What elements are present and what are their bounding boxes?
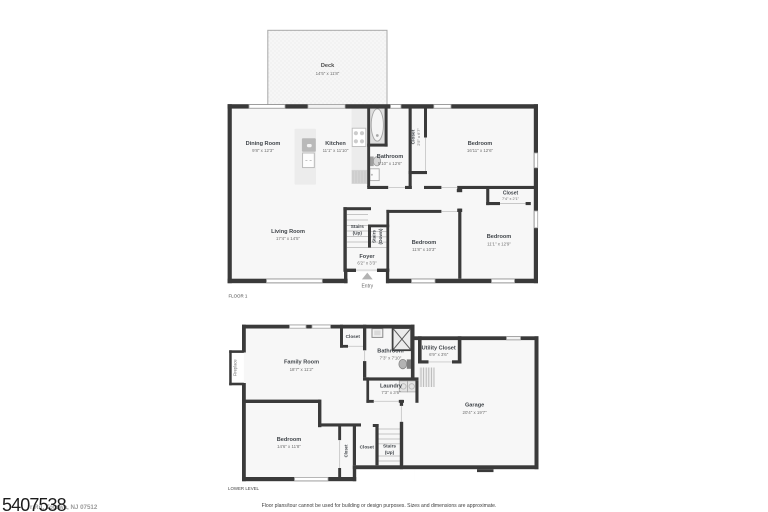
svg-text:6'2" x 3'3": 6'2" x 3'3"	[357, 261, 377, 266]
svg-text:Bathroom: Bathroom	[377, 154, 403, 160]
svg-text:Utility Closet: Utility Closet	[422, 345, 456, 351]
svg-text:18'7" x 11'2": 18'7" x 11'2"	[290, 367, 314, 372]
svg-text:(Up): (Up)	[385, 450, 395, 455]
svg-text:7'3" x 3'6": 7'3" x 3'6"	[381, 390, 401, 395]
svg-text:7'4" x 2'1": 7'4" x 2'1"	[502, 196, 520, 201]
svg-text:Bedroom: Bedroom	[468, 141, 493, 147]
svg-text:Dining Room: Dining Room	[246, 141, 281, 147]
svg-text:16'11" x 12'6": 16'11" x 12'6"	[467, 148, 494, 153]
svg-text:Entry: Entry	[361, 284, 373, 290]
svg-text:Stairs: Stairs	[383, 444, 396, 449]
svg-text:Family Room: Family Room	[284, 359, 319, 365]
svg-text:9'8" x 12'3": 9'8" x 12'3"	[252, 148, 274, 153]
svg-text:LOWER LEVEL: LOWER LEVEL	[228, 486, 260, 491]
svg-text:14'6" x 11'8": 14'6" x 11'8"	[277, 444, 301, 449]
svg-text:(Down): (Down)	[378, 228, 383, 244]
svg-text:Fireplace: Fireplace	[233, 359, 238, 377]
svg-text:2'5" x 6'7": 2'5" x 6'7"	[416, 128, 421, 146]
svg-text:Garage: Garage	[465, 403, 484, 409]
svg-text:Bedroom: Bedroom	[277, 437, 302, 443]
svg-text:Stairs: Stairs	[372, 230, 377, 243]
svg-text:17'4" x 14'5": 17'4" x 14'5"	[276, 236, 301, 241]
svg-text:FLOOR 1: FLOOR 1	[229, 293, 248, 298]
svg-text:14'5" x 11'8": 14'5" x 11'8"	[316, 71, 340, 76]
svg-text:Bathroom: Bathroom	[377, 348, 403, 354]
svg-text:Foyer: Foyer	[359, 254, 375, 260]
svg-text:11'1" x 11'10": 11'1" x 11'10"	[323, 148, 349, 153]
svg-text:6'9" x 3'6": 6'9" x 3'6"	[429, 352, 449, 357]
svg-text:Laundry: Laundry	[380, 384, 403, 390]
svg-text:7'3" x 7'10": 7'3" x 7'10"	[380, 355, 402, 360]
svg-text:11'8" x 10'3": 11'8" x 10'3"	[412, 247, 436, 252]
svg-text:Floor plans/tour cannot be use: Floor plans/tour cannot be used for buil…	[262, 503, 497, 509]
svg-text:Deck: Deck	[321, 63, 335, 69]
svg-text:5'10" x 12'6": 5'10" x 12'6"	[378, 161, 403, 166]
svg-text:11'1" x 12'9": 11'1" x 12'9"	[487, 242, 511, 247]
svg-text:20'4" x 19'7": 20'4" x 19'7"	[463, 410, 488, 415]
svg-text:Stairs: Stairs	[351, 224, 364, 229]
svg-text:Closet: Closet	[343, 444, 348, 457]
svg-text:Closet: Closet	[346, 334, 361, 339]
svg-text:Kitchen: Kitchen	[325, 141, 346, 147]
svg-text:5407538: 5407538	[2, 495, 67, 512]
svg-text:(Up): (Up)	[353, 231, 363, 236]
svg-text:Bedroom: Bedroom	[412, 240, 437, 246]
svg-text:Bedroom: Bedroom	[487, 234, 512, 240]
svg-text:Living Room: Living Room	[271, 229, 305, 235]
svg-text:Closet: Closet	[360, 444, 375, 449]
